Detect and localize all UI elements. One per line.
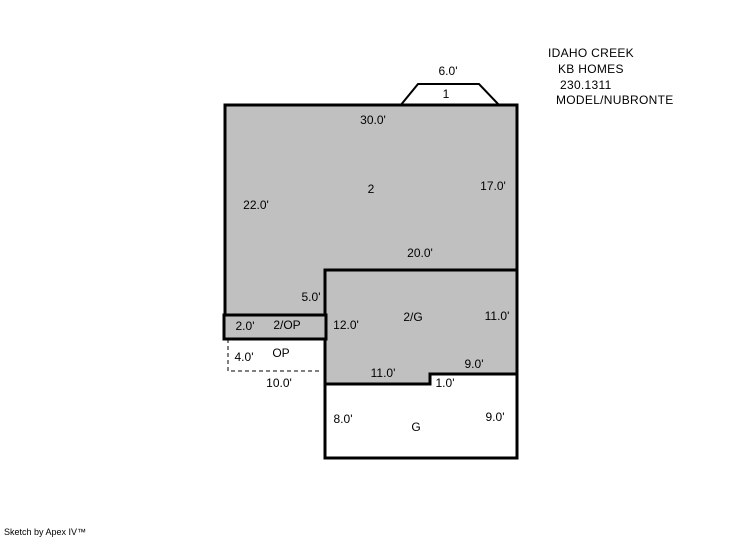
- dim-main-step: 5.0': [302, 291, 321, 303]
- dim-garage-right: 9.0': [486, 411, 505, 423]
- floorplan-drawing: [0, 0, 746, 547]
- dim-main-top: 30.0': [360, 114, 386, 126]
- dim-upper-garage-bottom-left: 11.0': [371, 367, 396, 379]
- bay-outline: [400, 84, 500, 106]
- header-model-name: MODEL/NUBRONTE: [556, 94, 674, 106]
- dim-upper-garage-notch: 1.0': [436, 377, 455, 389]
- dim-upper-garage-bottom-right: 9.0': [465, 358, 484, 370]
- header-project-name: IDAHO CREEK: [548, 47, 634, 59]
- header-file-number: 230.1311: [560, 79, 612, 91]
- area-label-bay: 1: [443, 88, 450, 100]
- dim-upper-garage-right: 11.0': [485, 310, 510, 322]
- dim-upper-garage-left: 12.0': [333, 319, 359, 331]
- area-label-garage: G: [411, 421, 420, 433]
- dim-bay-width: 6.0': [439, 65, 458, 77]
- apex-credit: Sketch by Apex IV™: [4, 528, 86, 537]
- dim-open-porch-height: 4.0': [235, 351, 254, 363]
- area-label-open-porch: OP: [272, 347, 289, 359]
- dim-porch-strip-height: 2.0': [236, 320, 255, 332]
- dim-upper-garage-top: 20.0': [407, 247, 433, 259]
- dim-main-left: 22.0': [243, 199, 269, 211]
- area-label-upper-garage: 2/G: [403, 311, 422, 323]
- area-label-porch-strip: 2/OP: [273, 319, 300, 331]
- area-label-main: 2: [368, 183, 375, 195]
- apex-sketch-page: 6.0' 1 30.0' 2 17.0' 22.0' 5.0' 20.0' 12…: [0, 0, 746, 547]
- dim-main-right: 17.0': [480, 180, 506, 192]
- dim-garage-left: 8.0': [334, 413, 353, 425]
- header-builder-name: KB HOMES: [558, 63, 624, 75]
- dim-open-porch-width: 10.0': [266, 377, 292, 389]
